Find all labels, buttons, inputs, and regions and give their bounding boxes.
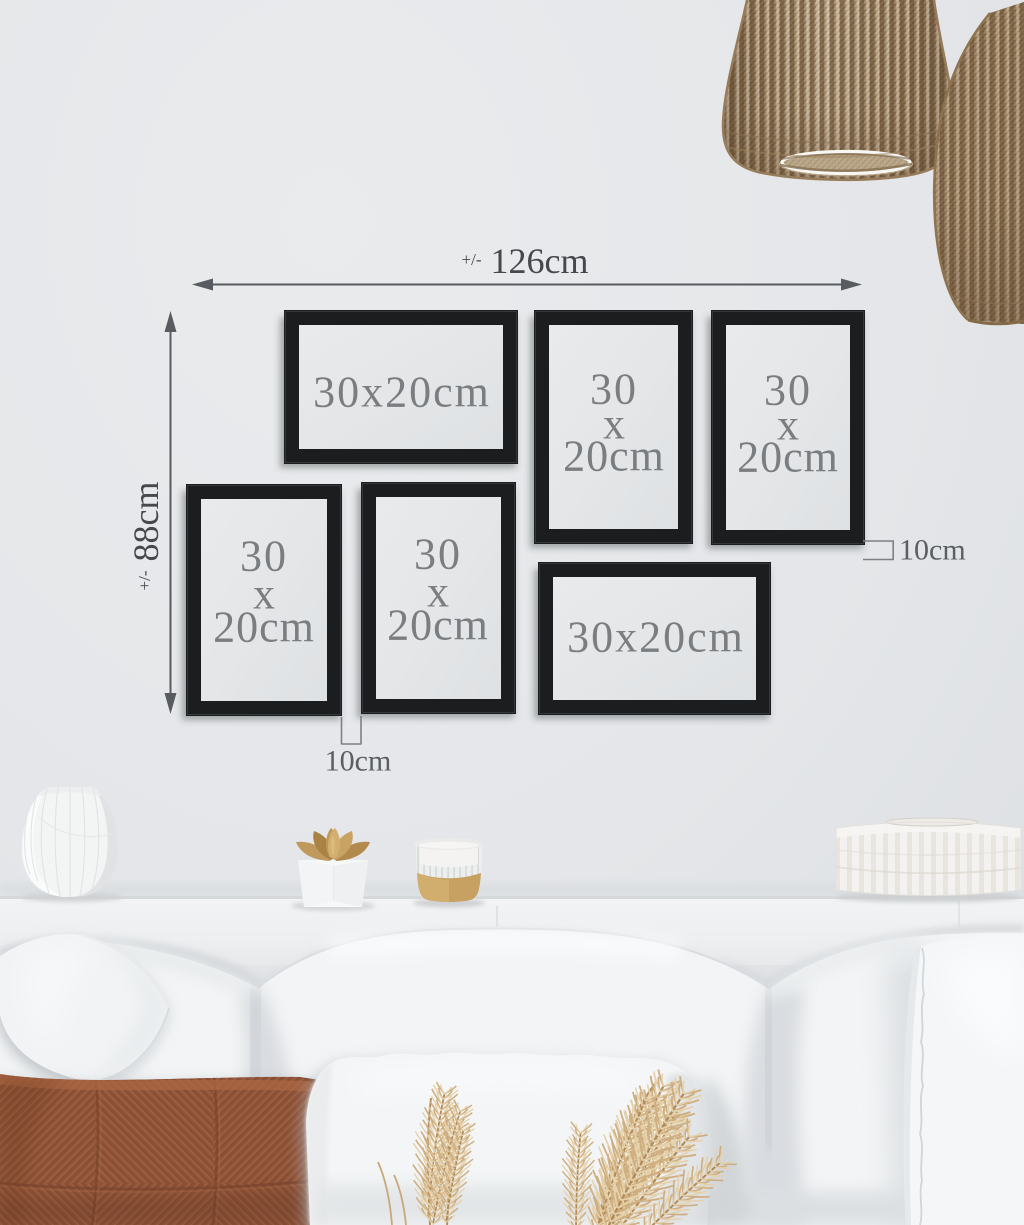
svg-text:20cm: 20cm: [387, 601, 489, 650]
svg-text:20cm: 20cm: [737, 433, 839, 482]
svg-text:30x20cm: 30x20cm: [567, 613, 745, 662]
svg-text:10cm: 10cm: [899, 534, 966, 567]
svg-text:20cm: 20cm: [213, 603, 315, 652]
svg-text:+/- 126cm: +/- 126cm: [462, 241, 589, 281]
svg-text:20cm: 20cm: [563, 432, 665, 481]
svg-text:30x20cm: 30x20cm: [313, 368, 491, 417]
svg-text:10cm: 10cm: [325, 745, 392, 778]
